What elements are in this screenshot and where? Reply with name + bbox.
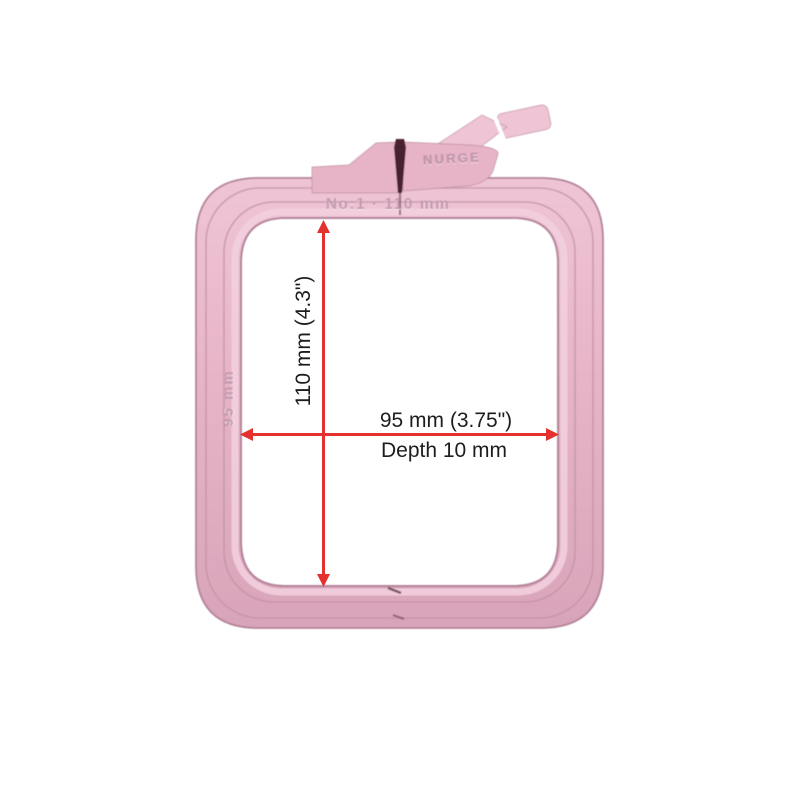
hoop-dimension-figure: NURGE No:1 · 110 mm 95 mm 110 mm (4.3") — [0, 0, 800, 800]
embroidery-hoop: NURGE No:1 · 110 mm 95 mm — [196, 104, 603, 628]
arrow-right-icon — [546, 428, 559, 441]
arrow-down-icon — [317, 574, 330, 587]
clasp-tab — [496, 104, 552, 139]
hoop-inner-groove — [224, 202, 575, 602]
height-dimension: 110 mm (4.3") — [292, 220, 330, 587]
brand-embossed-label: NURGE — [423, 149, 482, 167]
hoop-inner-band — [235, 212, 564, 592]
product-image: NURGE No:1 · 110 mm 95 mm 110 mm (4.3") — [0, 0, 800, 800]
hoop-inner-edge — [241, 218, 558, 586]
hoop-size-embossed-label: No:1 · 110 mm — [326, 196, 451, 213]
dimension-overlay: 110 mm (4.3") 95 mm (3.75") Depth 10 mm — [240, 220, 559, 587]
hoop-width-embossed-label: 95 mm — [220, 369, 237, 427]
arrow-left-icon — [240, 428, 253, 441]
depth-dimension-label: Depth 10 mm — [381, 439, 507, 462]
width-dimension: 95 mm (3.75") Depth 10 mm — [240, 409, 559, 462]
clasp-left-block — [312, 142, 398, 193]
arrow-up-icon — [317, 220, 330, 233]
height-dimension-label: 110 mm (4.3") — [292, 276, 315, 407]
hoop-frame — [196, 178, 603, 628]
width-dimension-label: 95 mm (3.75") — [380, 409, 512, 432]
hoop-outer-groove — [206, 188, 593, 618]
